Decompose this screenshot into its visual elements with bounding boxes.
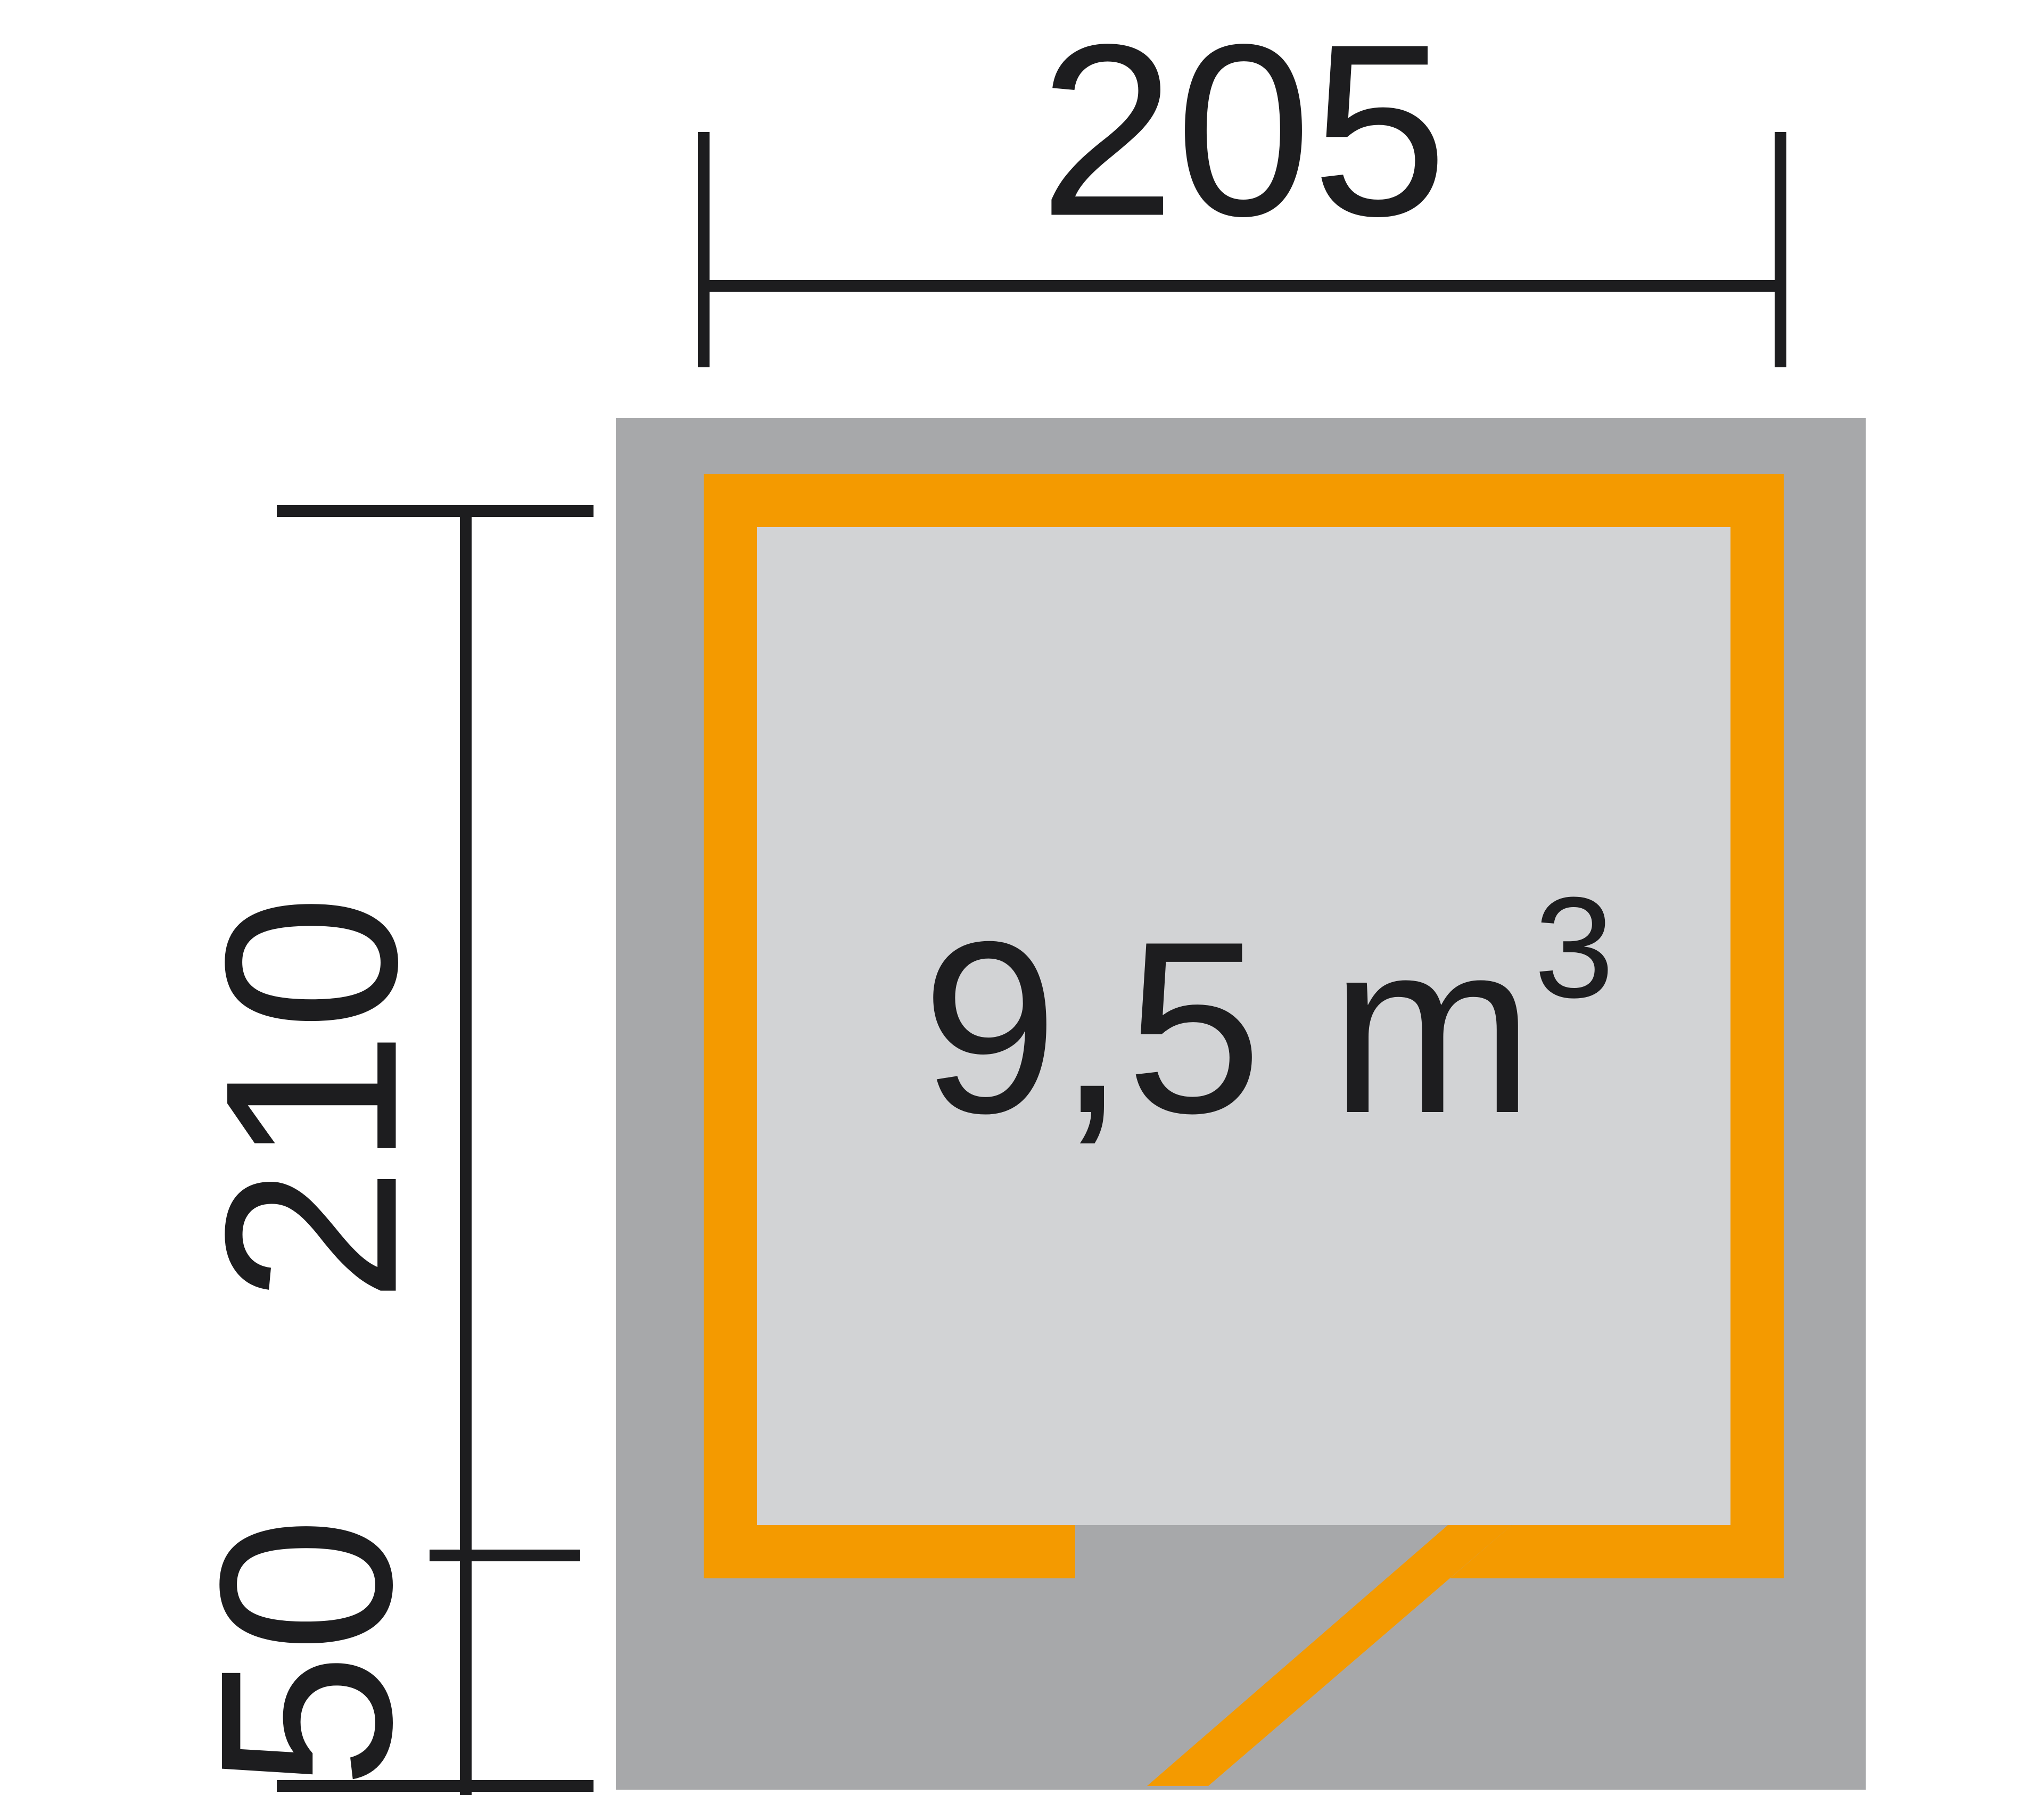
depth-dimension-line bbox=[460, 505, 472, 1795]
volume-label: 9,5 m3 bbox=[922, 868, 1614, 1164]
width-dimension-tick-right bbox=[1775, 132, 1786, 367]
volume-exponent: 3 bbox=[1534, 868, 1614, 1028]
volume-value: 9,5 m bbox=[922, 891, 1534, 1164]
depth-dimension-tick-middle bbox=[430, 1550, 580, 1561]
width-dimension-label: 205 bbox=[1039, 0, 1448, 267]
depth-dimension-label: 210 bbox=[175, 894, 448, 1303]
width-dimension-line bbox=[704, 280, 1781, 292]
width-dimension-tick-left bbox=[698, 132, 710, 367]
depth-dimension-tick-top bbox=[277, 505, 594, 517]
shed-floor-plan-diagram: 205 210 50 9,5 m3 bbox=[0, 0, 2044, 1795]
floor-plan-canvas: 205 210 50 9,5 m3 bbox=[0, 0, 2044, 1795]
offset-dimension-label: 50 bbox=[170, 1517, 443, 1789]
